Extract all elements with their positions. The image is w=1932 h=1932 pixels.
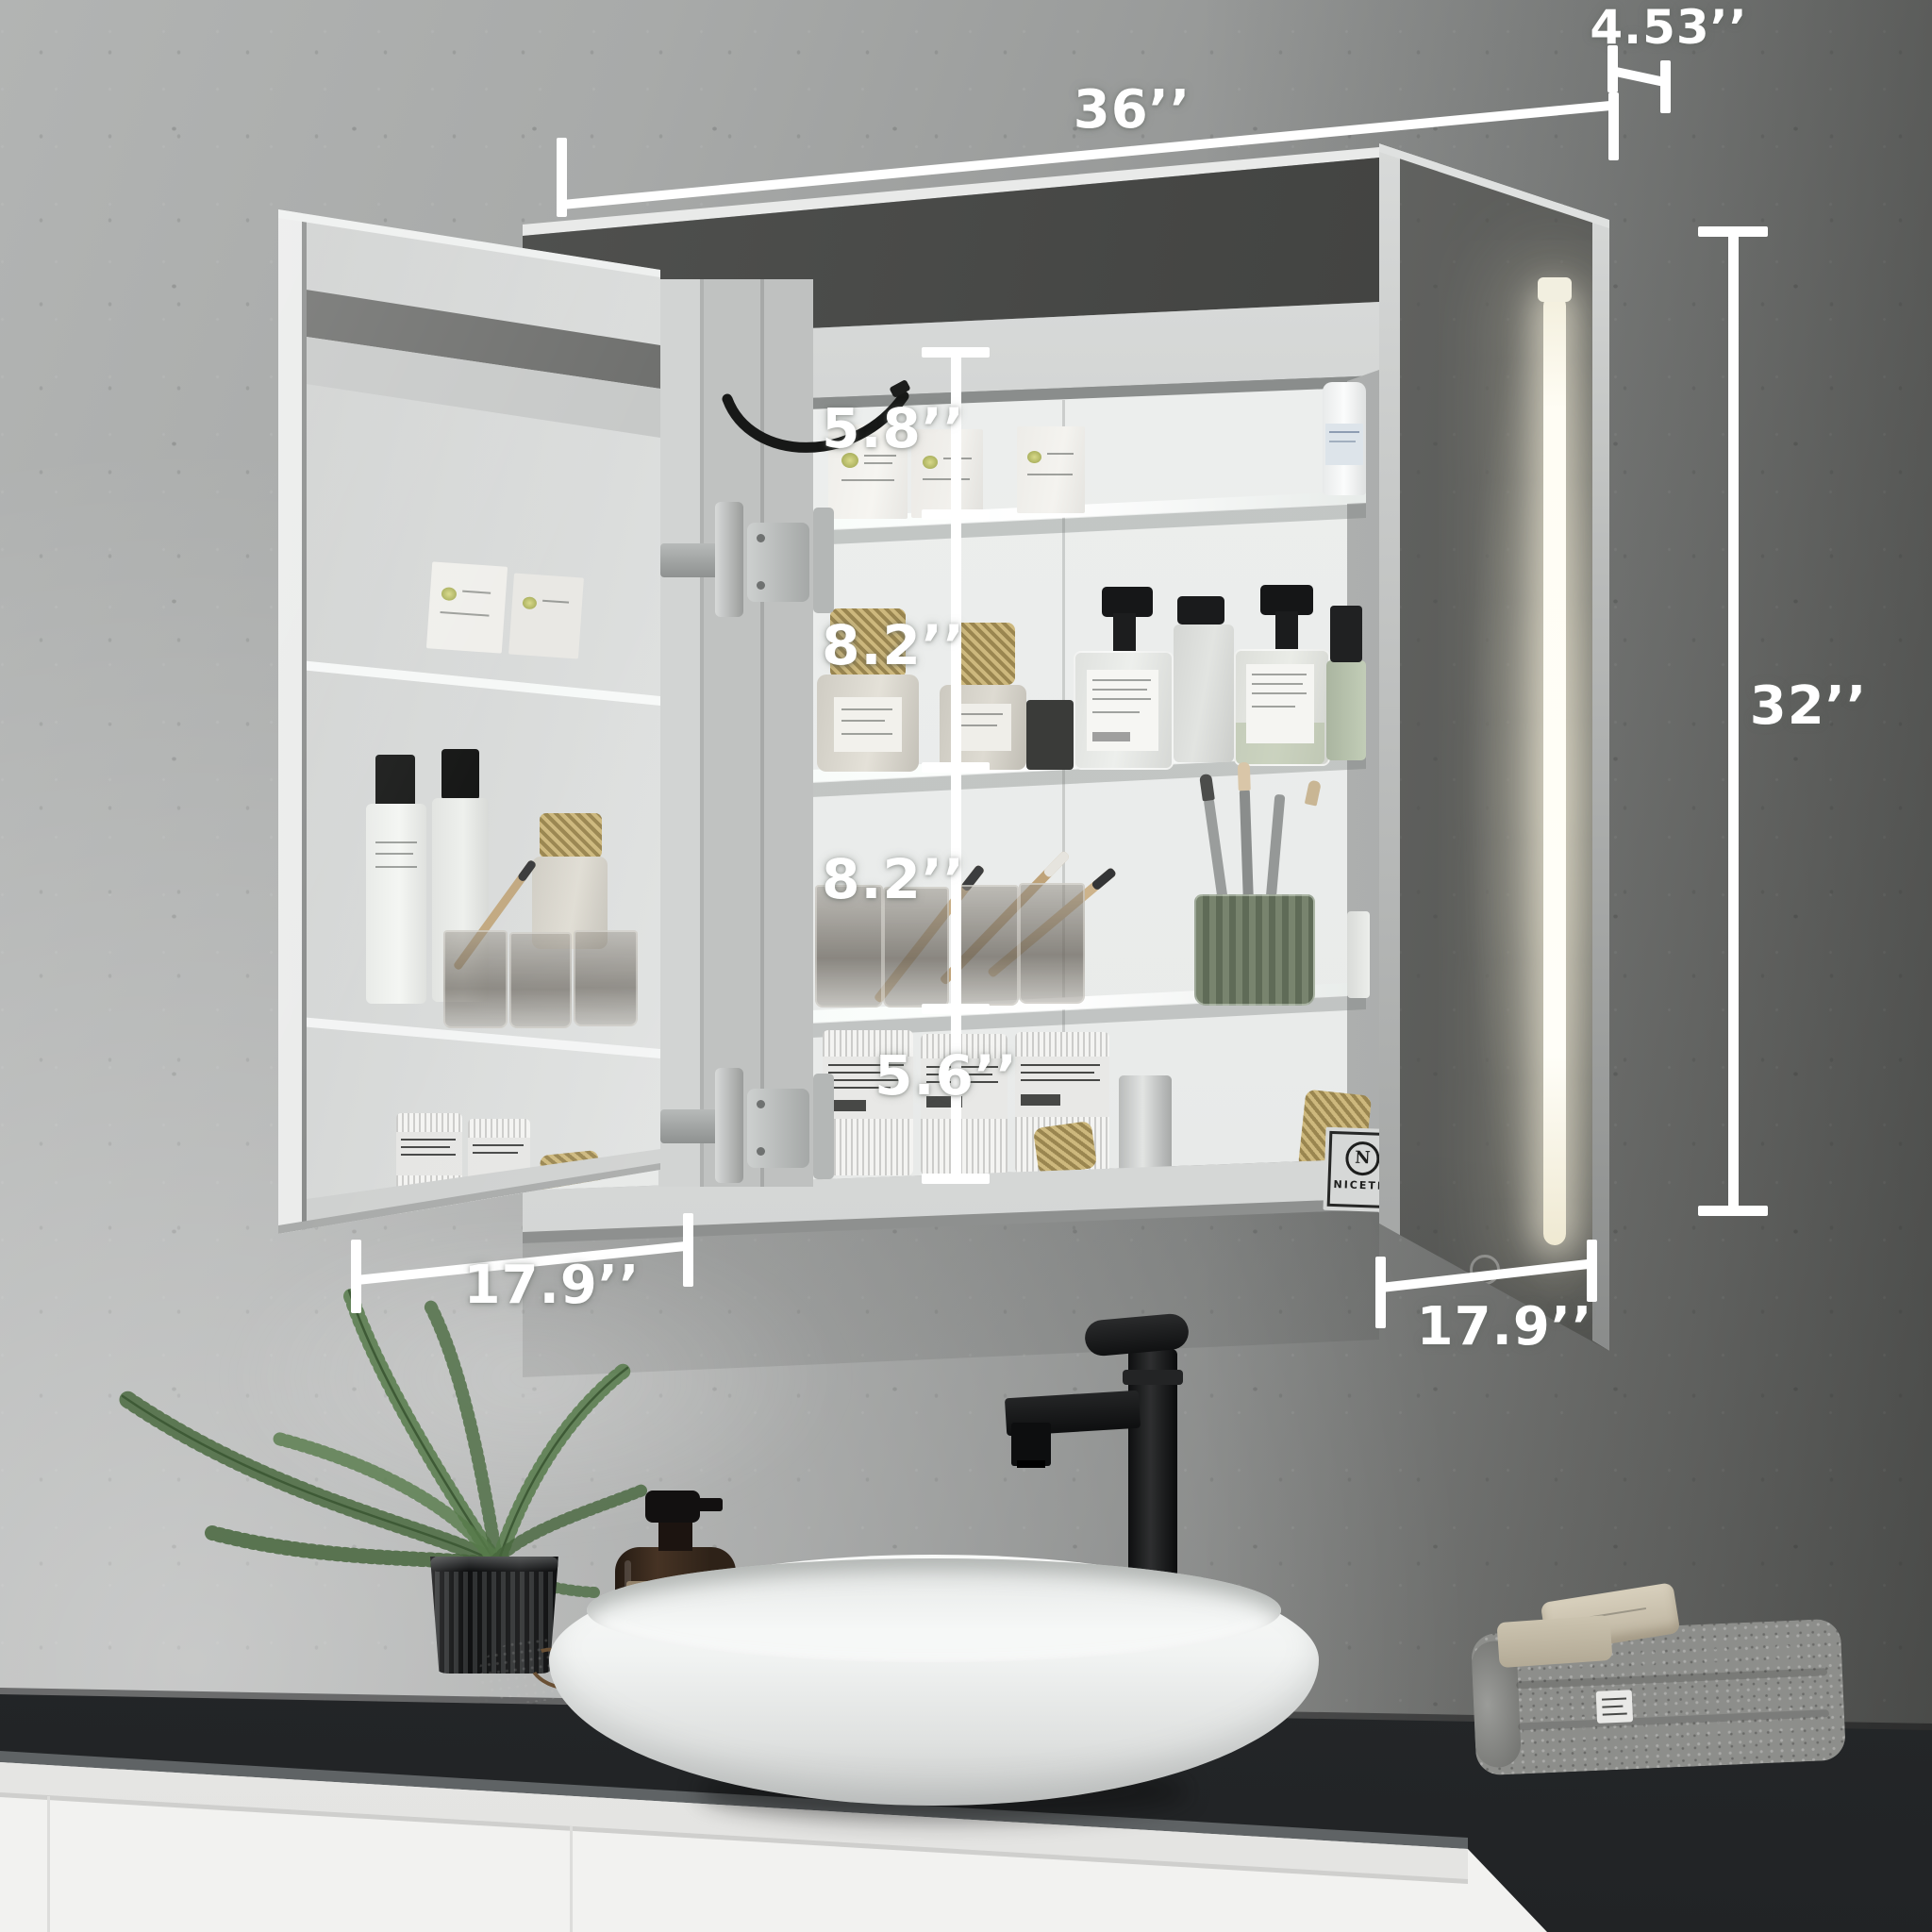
faucet-body [1128, 1349, 1177, 1591]
dimension-label-8-2b: 8.2’’ [804, 847, 983, 911]
dimension-tick [557, 138, 567, 217]
soap-bottle-neck [658, 1519, 692, 1551]
dimension-tick [922, 762, 990, 773]
towel-tag [1596, 1690, 1633, 1724]
door-hinge-lower [660, 1064, 840, 1187]
dimension-tick [1375, 1257, 1386, 1328]
soap-dispenser-4 [1326, 660, 1366, 760]
dimension-tick [922, 347, 990, 358]
dimension-tick [1587, 1240, 1597, 1302]
led-strip-top-cap [1538, 277, 1572, 302]
vessel-sink-rim-inner [587, 1558, 1281, 1662]
dimension-label-36: 36’’ [1028, 79, 1236, 141]
storage-box-3 [1017, 426, 1085, 513]
soap-dispenser-1 [1074, 651, 1174, 770]
perfume-bottle-1 [817, 675, 919, 772]
dimension-label-17-9-left: 17.9’’ [453, 1255, 651, 1316]
dimension-label-8-2a: 8.2’’ [804, 613, 983, 677]
metal-cup [1119, 1075, 1172, 1172]
dispenser-pump-4 [1330, 606, 1362, 662]
faucet-collar [1123, 1370, 1183, 1385]
soap-bottle-spout [696, 1498, 723, 1511]
dispenser-stem-3 [1275, 611, 1298, 651]
door-hinge-upper [660, 498, 840, 621]
dark-accessory [1026, 700, 1074, 770]
dimension-tick [1698, 1206, 1768, 1216]
dimension-label-4-53: 4.53’’ [1570, 0, 1768, 55]
dimension-label-17-9-right: 17.9’’ [1406, 1296, 1604, 1357]
gold-accessory-1 [1033, 1121, 1097, 1175]
dimension-tick [1608, 92, 1619, 160]
soap-bar-2 [1496, 1615, 1612, 1668]
dispenser-stem-1 [1113, 613, 1136, 655]
soap-bottle-pump [645, 1491, 700, 1523]
dimension-tick [922, 1004, 990, 1014]
small-glass-jar [1347, 911, 1370, 998]
vanity-seam-1 [47, 1796, 50, 1932]
dimension-label-5-8: 5.8’’ [804, 396, 983, 460]
faucet-spout-opening [1017, 1460, 1045, 1468]
dispenser-pump-2 [1177, 596, 1224, 625]
dimension-label-32: 32’’ [1714, 675, 1903, 737]
dimension-tick [922, 1174, 990, 1184]
makeup-brush-holder [1194, 894, 1315, 1006]
vanity-seam-2 [570, 1826, 573, 1932]
dimension-label-5-6: 5.6’’ [857, 1043, 1036, 1108]
bathroom-scene: N NICETE [0, 0, 1932, 1932]
dimension-tick [922, 509, 990, 520]
led-light-strip [1543, 294, 1566, 1245]
dimension-tick [1660, 60, 1671, 113]
soap-dispenser-2 [1174, 625, 1234, 762]
toothbrush-cup-4 [1019, 883, 1085, 1004]
soap-dispenser-3 [1234, 649, 1330, 766]
deodorant-stick [1323, 382, 1366, 495]
